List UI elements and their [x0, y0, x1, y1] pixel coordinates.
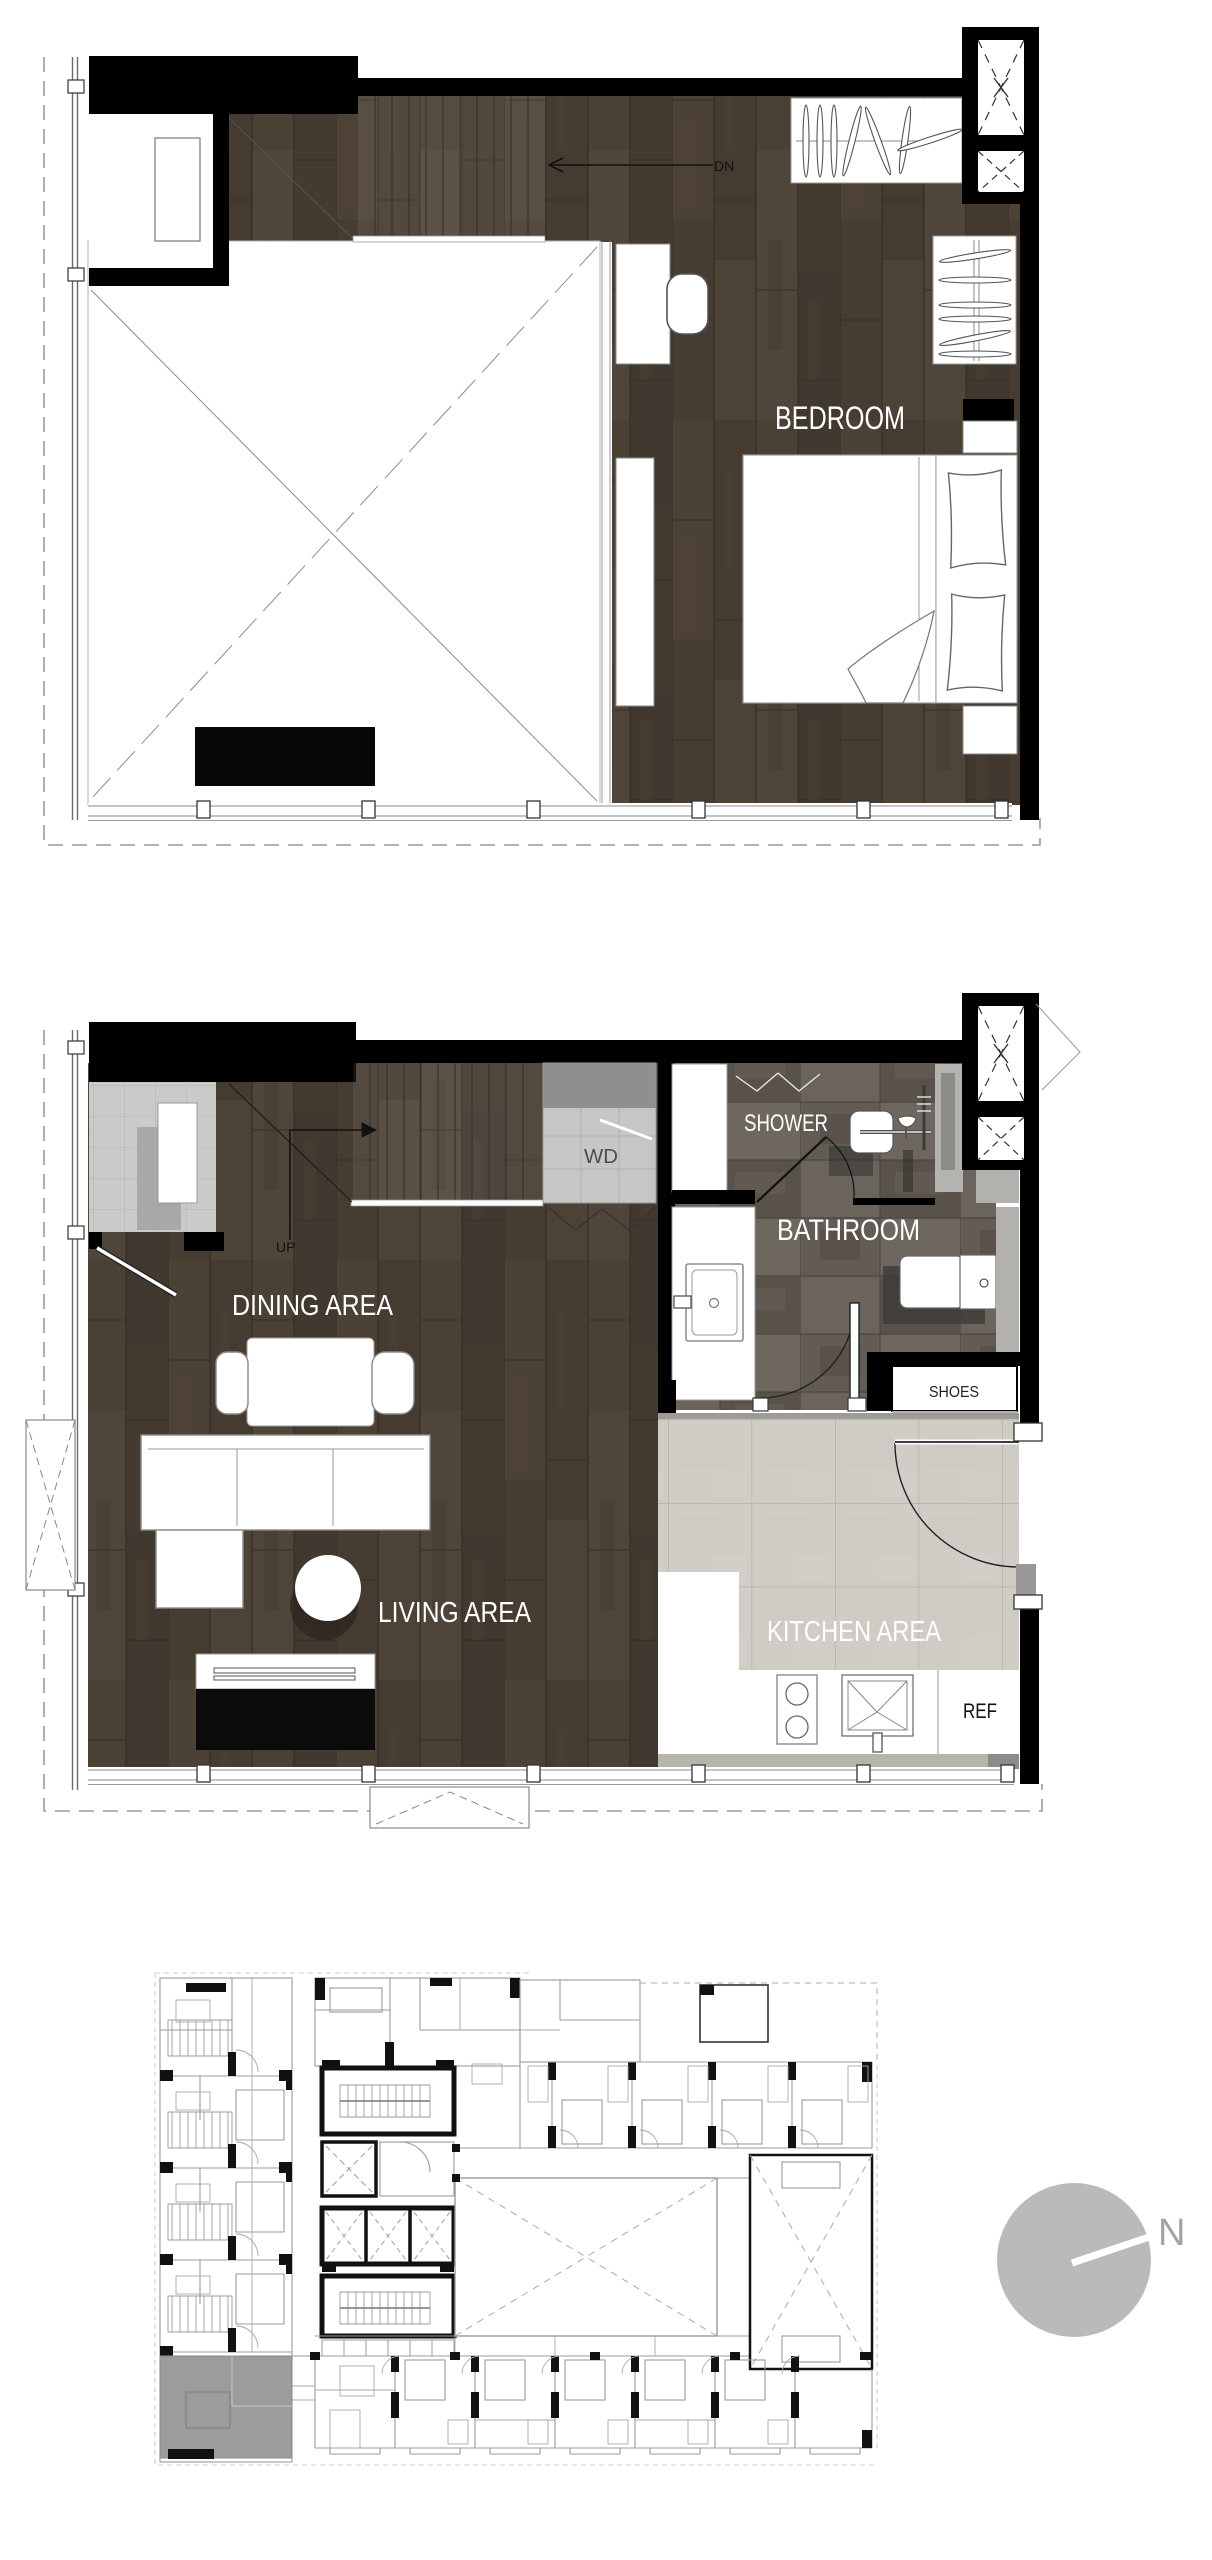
svg-text:DINING AREA: DINING AREA — [232, 1290, 394, 1322]
svg-text:BATHROOM: BATHROOM — [777, 1214, 920, 1247]
svg-text:REF: REF — [963, 1700, 997, 1723]
svg-text:KITCHEN AREA: KITCHEN AREA — [767, 1616, 942, 1648]
svg-text:LIVING AREA: LIVING AREA — [378, 1597, 532, 1629]
svg-text:DN: DN — [714, 158, 734, 174]
svg-text:N: N — [1158, 2212, 1185, 2254]
svg-text:UP: UP — [276, 1239, 295, 1255]
svg-text:WD: WD — [584, 1146, 618, 1168]
svg-text:SHOES: SHOES — [929, 1384, 979, 1401]
svg-text:SHOWER: SHOWER — [744, 1110, 828, 1137]
svg-text:BEDROOM: BEDROOM — [775, 400, 905, 436]
